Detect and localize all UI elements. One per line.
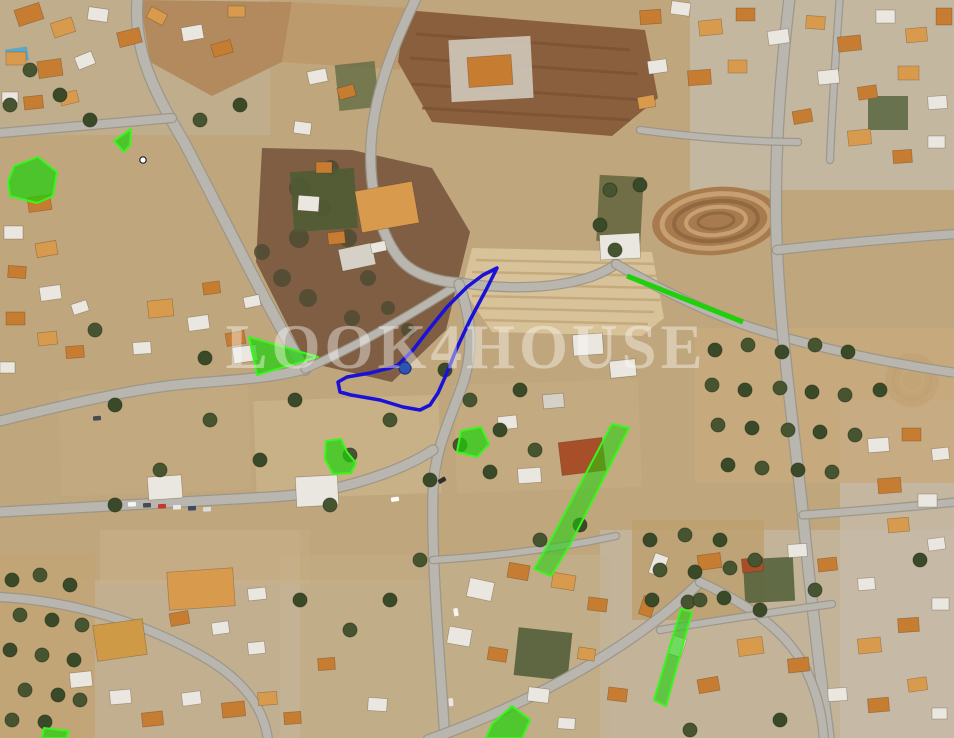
building <box>39 285 62 302</box>
tree <box>413 553 427 567</box>
tree <box>713 533 727 547</box>
tree <box>643 533 657 547</box>
tree <box>75 618 89 632</box>
tree <box>288 393 302 407</box>
building <box>316 162 332 173</box>
tree <box>717 591 731 605</box>
building <box>147 299 174 319</box>
building <box>109 689 131 705</box>
building <box>847 129 871 146</box>
tree <box>723 561 737 575</box>
building <box>867 697 889 713</box>
tree <box>153 463 167 477</box>
building <box>932 598 949 610</box>
building <box>293 121 312 135</box>
building <box>147 475 183 500</box>
tree <box>808 583 822 597</box>
building <box>670 1 691 17</box>
tree <box>705 378 719 392</box>
tree <box>741 338 755 352</box>
building <box>318 657 336 670</box>
building <box>928 95 948 109</box>
building <box>817 557 837 572</box>
building <box>527 687 550 703</box>
building <box>487 647 508 663</box>
tree <box>13 608 27 622</box>
tree <box>383 413 397 427</box>
tree <box>773 713 787 727</box>
building <box>169 610 190 626</box>
building <box>936 8 952 25</box>
tree <box>791 463 805 477</box>
building <box>6 52 26 65</box>
building <box>698 19 722 36</box>
building <box>736 8 755 21</box>
building <box>577 647 596 662</box>
tree <box>825 465 839 479</box>
building <box>876 10 895 23</box>
tree <box>5 573 19 587</box>
building <box>688 69 712 86</box>
building <box>806 15 826 29</box>
tree <box>35 648 49 662</box>
tree <box>203 413 217 427</box>
tree <box>738 383 752 397</box>
building <box>898 617 920 632</box>
tree <box>493 423 507 437</box>
building <box>87 7 109 23</box>
building <box>0 362 15 373</box>
tree <box>678 528 692 542</box>
building <box>788 543 808 557</box>
aerial-photo-canvas: LOOK4HOUSE <box>0 0 954 738</box>
tree <box>528 443 542 457</box>
building <box>902 428 921 441</box>
building <box>607 687 627 702</box>
building <box>202 281 221 295</box>
building <box>887 517 909 533</box>
building <box>637 95 656 110</box>
building <box>187 315 210 332</box>
building <box>857 637 881 654</box>
tree <box>533 533 547 547</box>
building <box>868 437 890 452</box>
building <box>828 687 848 701</box>
tree <box>838 388 852 402</box>
building <box>368 697 388 711</box>
building <box>228 6 245 17</box>
building <box>221 701 245 718</box>
building <box>928 136 945 148</box>
tree <box>755 461 769 475</box>
tree <box>805 385 819 399</box>
tree <box>83 113 97 127</box>
building <box>6 312 25 325</box>
tree <box>711 418 725 432</box>
tree <box>841 345 855 359</box>
building <box>247 641 265 655</box>
building <box>37 331 57 346</box>
building <box>327 231 345 245</box>
building <box>507 562 530 580</box>
building <box>932 708 947 719</box>
building <box>66 345 85 358</box>
tree <box>753 603 767 617</box>
building <box>918 494 937 507</box>
tree <box>193 113 207 127</box>
building <box>558 717 576 729</box>
building <box>857 85 878 101</box>
tree <box>198 351 212 365</box>
building <box>787 657 809 673</box>
tree <box>483 465 497 479</box>
tree <box>18 683 32 697</box>
building <box>284 711 302 724</box>
tree <box>343 623 357 637</box>
building <box>133 341 152 354</box>
tree <box>745 421 759 435</box>
tree <box>721 458 735 472</box>
building <box>551 572 576 590</box>
building <box>247 587 266 601</box>
tree <box>463 393 477 407</box>
tree <box>108 498 122 512</box>
tree <box>293 593 307 607</box>
building <box>837 35 861 52</box>
tree <box>848 428 862 442</box>
building <box>728 60 747 73</box>
tree <box>653 563 667 577</box>
building <box>542 393 564 409</box>
building <box>211 621 230 635</box>
building <box>8 265 27 278</box>
tree <box>873 383 887 397</box>
building <box>4 226 23 239</box>
building <box>878 477 902 494</box>
building <box>467 55 513 88</box>
tree <box>383 593 397 607</box>
building <box>167 568 235 611</box>
building <box>587 597 607 612</box>
building <box>858 577 876 590</box>
tree <box>633 178 647 192</box>
tree <box>63 578 77 592</box>
tree <box>781 423 795 437</box>
tree <box>708 343 722 357</box>
building <box>447 626 473 647</box>
building <box>93 619 148 662</box>
building <box>817 69 839 85</box>
tree <box>33 568 47 582</box>
building <box>37 58 63 78</box>
white-dot-marker <box>140 157 146 163</box>
building <box>898 66 919 80</box>
tree <box>5 713 19 727</box>
building <box>181 691 202 707</box>
tree <box>608 243 622 257</box>
building <box>23 95 43 110</box>
tree <box>323 498 337 512</box>
building <box>258 691 278 705</box>
tree <box>688 565 702 579</box>
tree <box>808 338 822 352</box>
building <box>767 29 790 46</box>
tree <box>813 425 827 439</box>
tree <box>773 381 787 395</box>
tree <box>593 218 607 232</box>
building <box>893 149 913 163</box>
building <box>647 59 668 75</box>
tree <box>108 398 122 412</box>
building <box>298 195 320 211</box>
tree <box>513 383 527 397</box>
tree <box>23 63 37 77</box>
tree <box>683 723 697 737</box>
tree <box>88 323 102 337</box>
building <box>69 671 92 688</box>
tree <box>693 593 707 607</box>
tree <box>423 473 437 487</box>
tree <box>45 613 59 627</box>
building <box>518 467 542 484</box>
watermark-text: LOOK4HOUSE <box>225 312 706 382</box>
tree <box>775 345 789 359</box>
building <box>927 537 946 551</box>
satellite-map-image: LOOK4HOUSE <box>0 0 954 738</box>
building <box>640 9 662 24</box>
tree <box>645 593 659 607</box>
tree <box>3 643 17 657</box>
tree <box>38 715 52 729</box>
tree <box>253 453 267 467</box>
tree <box>3 98 17 112</box>
building <box>141 711 163 727</box>
tree <box>233 98 247 112</box>
building <box>907 677 928 693</box>
building <box>737 636 764 656</box>
tree <box>73 693 87 707</box>
tree <box>603 183 617 197</box>
tree <box>53 88 67 102</box>
tree <box>748 553 762 567</box>
tree <box>51 688 65 702</box>
building <box>792 108 813 124</box>
building <box>931 447 949 461</box>
building <box>905 27 927 43</box>
tree <box>913 553 927 567</box>
tree <box>67 653 81 667</box>
